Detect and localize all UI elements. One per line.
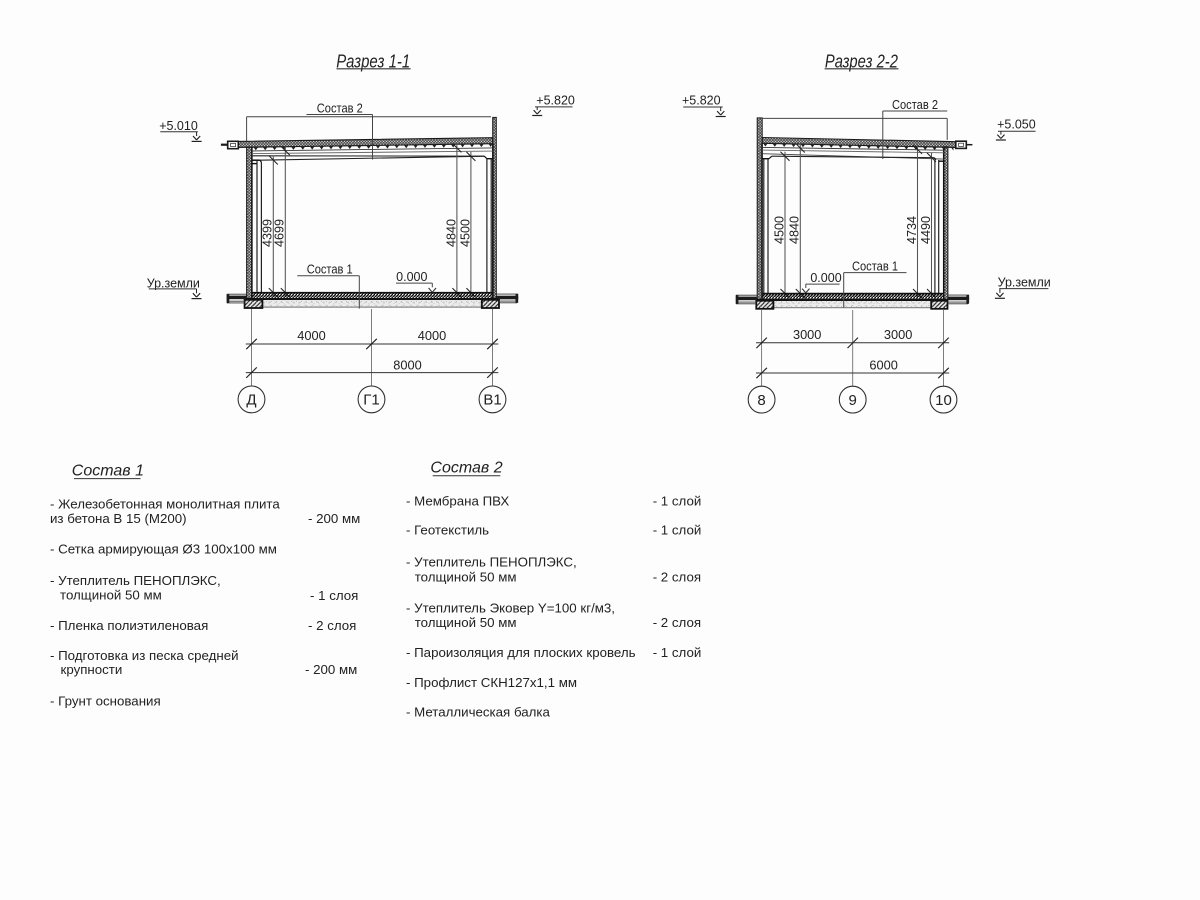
svg-text:4500: 4500 <box>772 216 786 244</box>
svg-text:0.000: 0.000 <box>396 270 427 284</box>
svg-text:- 2 слоя: - 2 слоя <box>308 618 356 633</box>
svg-text:4840: 4840 <box>788 216 802 244</box>
svg-text:4840: 4840 <box>444 219 458 247</box>
svg-text:4734: 4734 <box>905 216 919 244</box>
svg-text:Состав 1: Состав 1 <box>72 462 144 479</box>
svg-text:- Утеплитель ПЕНОПЛЭКС,: - Утеплитель ПЕНОПЛЭКС, <box>406 555 577 570</box>
svg-text:10: 10 <box>935 392 952 409</box>
svg-text:8000: 8000 <box>393 357 421 372</box>
svg-text:- Утеплитель Эковер Y=100 кг/м: - Утеплитель Эковер Y=100 кг/м3, <box>406 601 615 616</box>
svg-text:4000: 4000 <box>297 328 325 343</box>
svg-text:- 1 слой: - 1 слой <box>653 645 702 660</box>
svg-text:3000: 3000 <box>884 327 912 342</box>
svg-text:Состав 1: Состав 1 <box>307 262 353 277</box>
svg-text:Состав 2: Состав 2 <box>317 100 363 115</box>
svg-text:Состав 1: Состав 1 <box>852 259 898 274</box>
svg-text:толщиной 50 мм: толщиной 50 мм <box>415 615 517 630</box>
svg-text:Разрез 2-2: Разрез 2-2 <box>825 50 899 71</box>
svg-text:6000: 6000 <box>869 358 897 373</box>
svg-text:8: 8 <box>757 392 765 409</box>
svg-text:+5.820: +5.820 <box>682 93 721 107</box>
svg-text:Состав 2: Состав 2 <box>430 460 502 477</box>
svg-text:9: 9 <box>849 392 857 409</box>
svg-text:толщиной 50 мм: толщиной 50 мм <box>415 569 517 584</box>
svg-text:Состав 2: Состав 2 <box>892 97 938 112</box>
svg-text:- 1 слой: - 1 слой <box>653 523 702 538</box>
svg-text:- 1 слоя: - 1 слоя <box>310 588 358 603</box>
svg-text:Д: Д <box>246 392 256 409</box>
svg-text:0.000: 0.000 <box>810 271 841 285</box>
svg-text:+5.050: +5.050 <box>997 117 1036 131</box>
svg-text:Разрез 1-1: Разрез 1-1 <box>336 50 410 71</box>
svg-text:- Пароизоляция для плоских кро: - Пароизоляция для плоских кровель <box>406 645 636 660</box>
svg-text:- Подготовка из песка средней: - Подготовка из песка средней <box>50 648 239 663</box>
svg-text:- Железобетонная монолитная п: - Железобетонная монолитная плита <box>50 496 280 511</box>
svg-text:+5.820: +5.820 <box>536 93 575 107</box>
svg-text:- 200 мм: - 200 мм <box>305 662 357 677</box>
svg-text:+5.010: +5.010 <box>159 119 198 133</box>
svg-text:из бетона В 15 (М200): из бетона В 15 (М200) <box>50 511 187 526</box>
svg-text:- 1 слой: - 1 слой <box>653 494 702 509</box>
svg-text:- 2 слоя: - 2 слоя <box>653 615 701 630</box>
svg-text:4500: 4500 <box>458 219 472 247</box>
svg-text:- Мембрана ПВХ: - Мембрана ПВХ <box>406 494 509 509</box>
svg-text:Ур.земли: Ур.земли <box>998 275 1051 289</box>
svg-text:- Пленка полиэтиленовая: - Пленка полиэтиленовая <box>50 618 208 633</box>
svg-text:- 2 слоя: - 2 слоя <box>653 569 701 584</box>
svg-text:Г1: Г1 <box>363 392 379 409</box>
svg-text:4699: 4699 <box>273 219 287 247</box>
svg-text:В1: В1 <box>483 392 501 409</box>
svg-text:- Утеплитель ПЕНОПЛЭКС,: - Утеплитель ПЕНОПЛЭКС, <box>50 573 221 588</box>
svg-text:- Металлическая балка: - Металлическая балка <box>406 705 551 720</box>
svg-text:- Профлист СКН127х1,1 мм: - Профлист СКН127х1,1 мм <box>406 675 577 690</box>
svg-text:3000: 3000 <box>793 327 821 342</box>
svg-text:- Геотекстиль: - Геотекстиль <box>406 523 489 538</box>
svg-text:толщиной 50 мм: толщиной 50 мм <box>60 587 162 602</box>
svg-text:4490: 4490 <box>919 216 933 244</box>
svg-text:крупности: крупности <box>61 662 123 677</box>
svg-text:- 200 мм: - 200 мм <box>308 511 360 526</box>
svg-text:- Грунт основания: - Грунт основания <box>50 693 161 708</box>
svg-text:4000: 4000 <box>418 328 446 343</box>
svg-text:- Сетка армирующая Ø3 100х100: - Сетка армирующая Ø3 100х100 мм <box>50 542 277 557</box>
